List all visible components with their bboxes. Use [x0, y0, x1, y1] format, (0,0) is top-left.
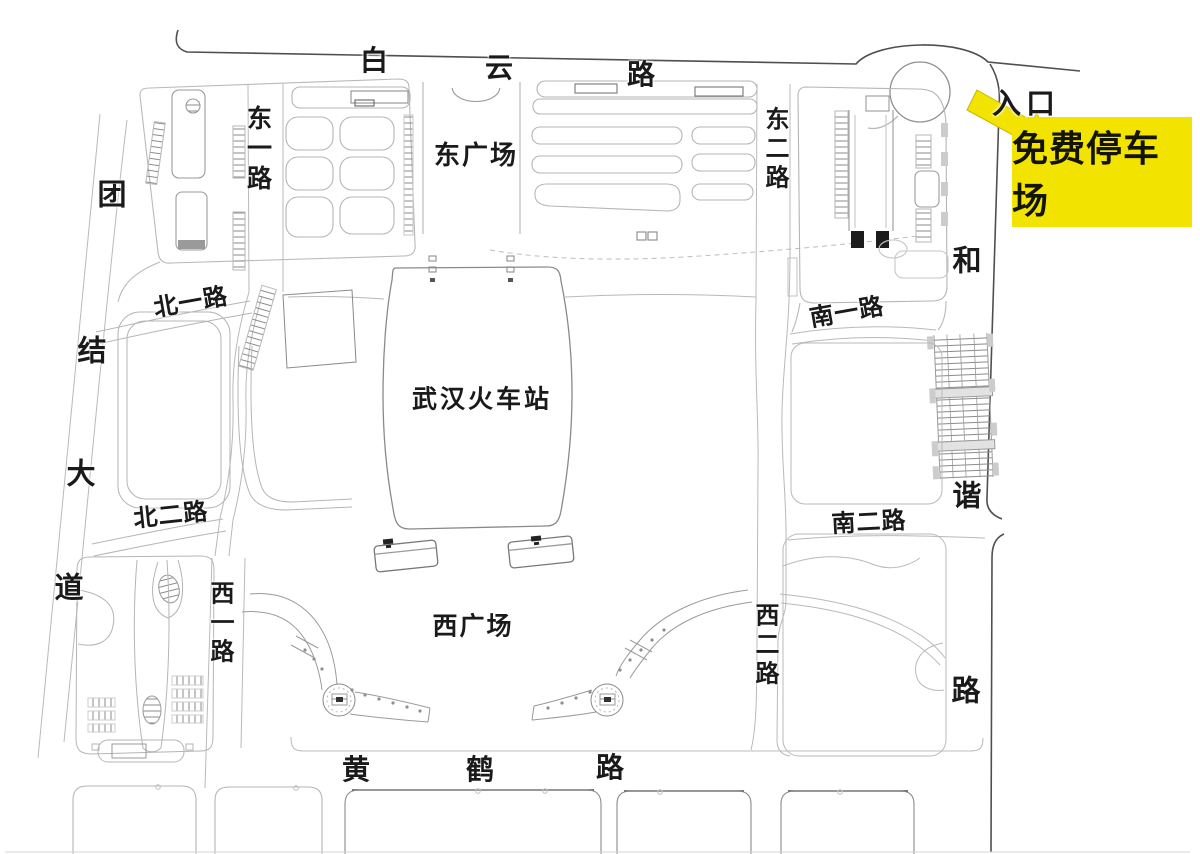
donger-xier-road-lines	[288, 84, 790, 756]
free-parking-sign: 免费停车场	[1012, 117, 1192, 227]
road-label-tuanjie-char2: 结	[77, 338, 106, 367]
station-parking-map: 白 云 路 团 结 大 道 黄 鹤 路 和 谐 路 东一路 东二路 西一路 西二…	[0, 0, 1200, 854]
road-label-baiyun-char3: 路	[627, 61, 655, 89]
east-plaza-label: 东广场	[434, 142, 518, 168]
road-label-donger: 东二路	[762, 107, 786, 194]
road-label-hexie-char3: 路	[951, 678, 980, 707]
station-outline	[374, 267, 574, 572]
west-plaza-label: 西广场	[432, 615, 513, 640]
southwest-terminal	[76, 556, 214, 762]
east-plaza-area	[423, 82, 520, 282]
southeast-blocks	[780, 343, 946, 756]
road-label-xier: 西二路	[752, 603, 776, 690]
west-ramps	[242, 590, 752, 722]
road-label-huanghe-char1: 黄	[342, 756, 370, 784]
roundabout-icon	[868, 62, 950, 129]
west-structures	[92, 285, 356, 618]
road-label-tuanjie-char1: 团	[97, 182, 126, 211]
road-label-tuanjie-char3: 大	[66, 461, 95, 490]
entrance-label: 入口	[992, 91, 1060, 120]
north-parking-grid	[286, 87, 413, 237]
road-label-xiyi: 西一路	[207, 581, 231, 668]
east-ramp-grid	[927, 333, 999, 480]
road-label-huanghe-char3: 路	[596, 754, 624, 782]
road-label-huanghe-char2: 鹤	[466, 756, 494, 784]
road-label-tuanjie-char4: 道	[54, 575, 83, 604]
road-label-baiyun-char1: 白	[360, 47, 388, 75]
road-label-hexie-char2: 谐	[952, 483, 981, 512]
road-label-naner: 南二路	[831, 509, 907, 537]
road-label-hexie-char1: 和	[952, 248, 981, 277]
station-label: 武汉火车站	[412, 388, 552, 413]
road-label-baiyun-char2: 云	[485, 54, 513, 82]
road-label-dongyi: 东一路	[245, 105, 270, 195]
